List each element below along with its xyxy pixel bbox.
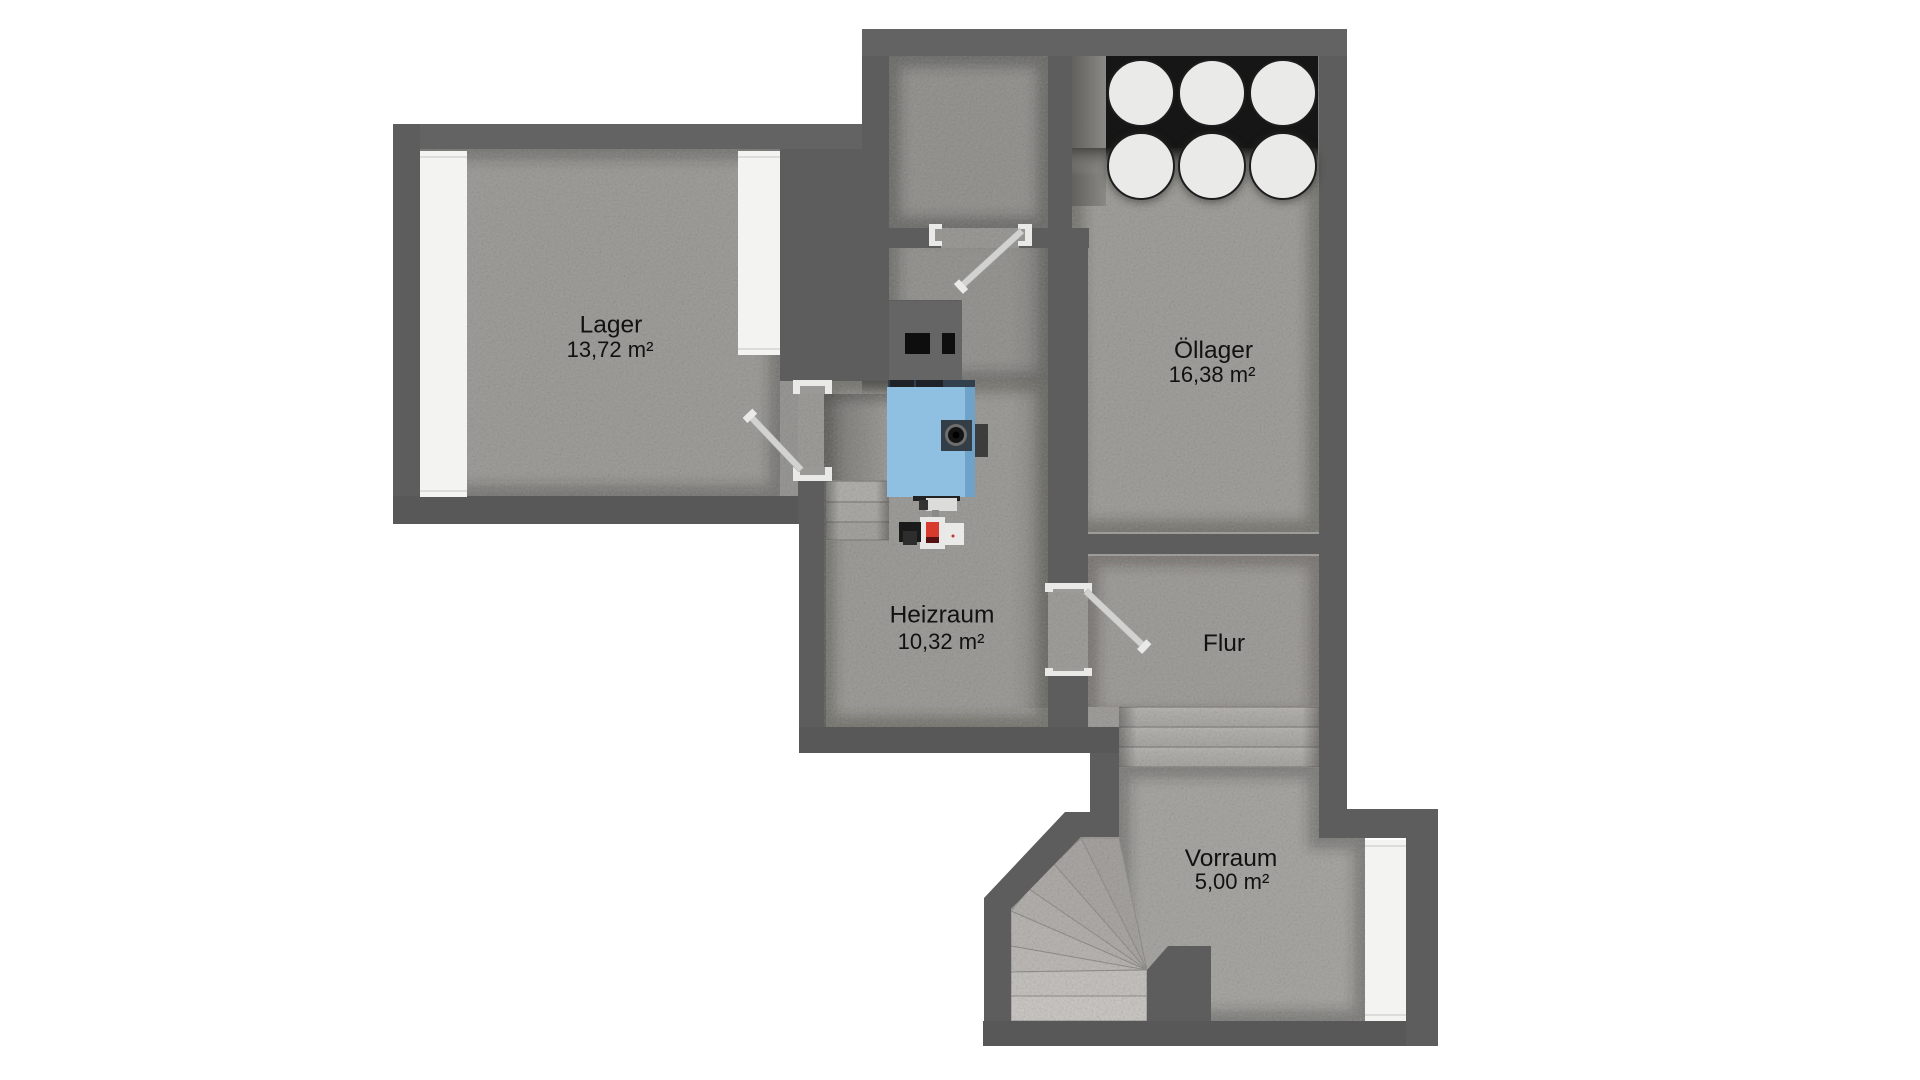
- svg-text:13,72 m²: 13,72 m²: [567, 337, 654, 362]
- svg-text:16,38 m²: 16,38 m²: [1169, 362, 1256, 387]
- svg-text:Heizraum: Heizraum: [890, 602, 995, 629]
- svg-text:Lager: Lager: [580, 312, 643, 339]
- svg-text:5,00 m²: 5,00 m²: [1195, 869, 1270, 894]
- svg-text:Vorraum: Vorraum: [1185, 845, 1278, 872]
- svg-text:Öllager: Öllager: [1174, 337, 1253, 364]
- svg-text:10,32 m²: 10,32 m²: [898, 629, 985, 654]
- svg-text:Flur: Flur: [1203, 630, 1245, 657]
